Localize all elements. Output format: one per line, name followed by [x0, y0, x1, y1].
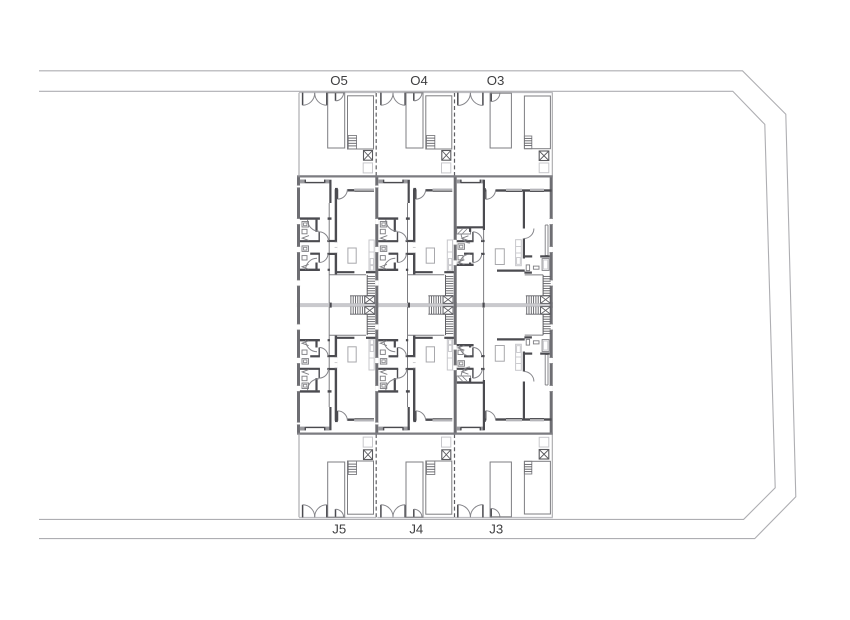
svg-text:J5: J5 [332, 522, 346, 537]
svg-text:J4: J4 [409, 522, 423, 537]
svg-text:O4: O4 [410, 73, 428, 88]
svg-text:O3: O3 [487, 73, 505, 88]
svg-text:O5: O5 [330, 73, 348, 88]
svg-text:J3: J3 [489, 522, 503, 537]
